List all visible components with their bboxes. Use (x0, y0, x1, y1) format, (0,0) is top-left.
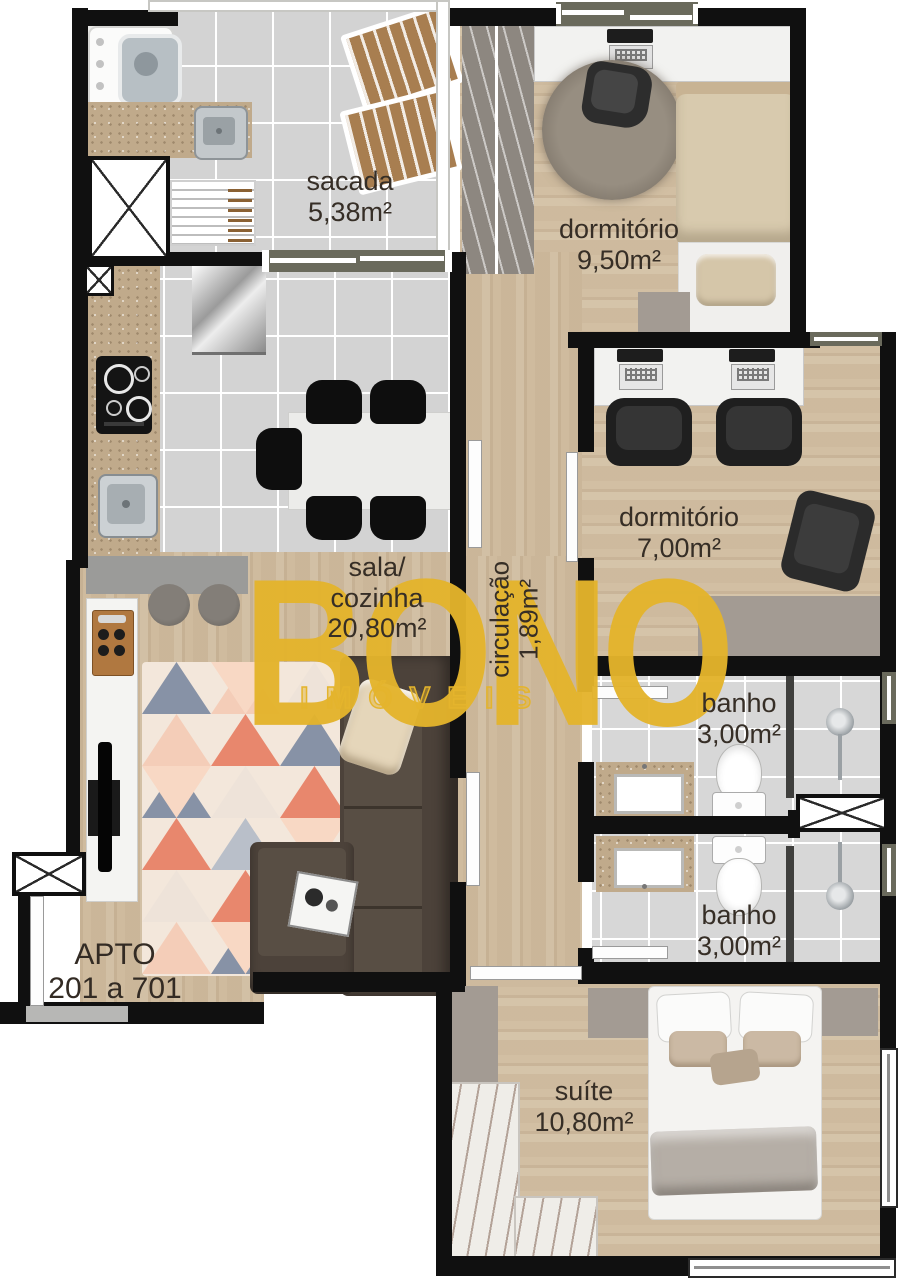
balcony-railing (148, 0, 440, 12)
room-label-sala-cozinha: sala/ cozinha 20,80m² (298, 552, 456, 644)
window (880, 1048, 898, 1208)
laptop-icon (729, 349, 775, 362)
window (882, 672, 896, 724)
double-desk (594, 344, 804, 406)
small-duct-shaft (84, 264, 114, 296)
bar-stool (148, 584, 190, 626)
bedroom1-door (468, 440, 482, 548)
room-label-banho2: banho 3,00m² (686, 900, 792, 961)
dining-chair (256, 428, 302, 490)
room-area: 1,89m² (515, 529, 544, 709)
laptop-icon (617, 349, 663, 362)
shower-arm (838, 734, 842, 780)
apartment-label-line1: APTO (40, 938, 190, 972)
room-name: banho (686, 688, 792, 719)
room-label-sacada: sacada 5,38m² (292, 166, 408, 227)
accent-pillow (709, 1048, 761, 1086)
single-bed (676, 82, 796, 332)
entry-threshold (26, 1006, 128, 1022)
bath2-door (592, 946, 668, 959)
drying-rack (170, 180, 256, 246)
window (810, 332, 882, 346)
blanket (650, 1126, 818, 1196)
washing-machine (88, 26, 174, 110)
dining-chair (370, 496, 426, 540)
suite-cabinet (448, 986, 498, 1084)
bath-duct-shaft (796, 794, 888, 832)
headboard-ledge (588, 988, 650, 1038)
floor-plan: BONO IMÓVEIS sacada 5,38m² dormitório 9,… (0, 0, 899, 1280)
room-area: 7,00m² (598, 533, 760, 564)
bar-stool (198, 584, 240, 626)
suite-closet-hangers (450, 1082, 520, 1272)
headboard-ledge (818, 988, 878, 1036)
duct-shaft (88, 156, 170, 260)
desk-chair (580, 59, 655, 131)
shower-head (826, 708, 854, 736)
fridge (192, 266, 266, 355)
cooktop (96, 356, 152, 434)
apartment-label: APTO 201 a 701 (40, 938, 190, 1006)
pillow (696, 254, 776, 306)
sliding-door (264, 250, 450, 272)
room-name: circulação (486, 529, 515, 709)
laundry-tank-sink (194, 106, 248, 160)
window-shaft (12, 852, 86, 896)
window (556, 2, 698, 26)
room-area: 9,50m² (538, 245, 700, 276)
room-name: banho (686, 900, 792, 931)
office-chair (716, 398, 802, 466)
sound-equipment (92, 610, 134, 676)
room-name: dormitório (598, 502, 760, 533)
window (688, 1258, 896, 1278)
laptop-icon (607, 29, 653, 43)
coffee-table (288, 871, 359, 937)
room-name: suíte (516, 1076, 652, 1107)
window (882, 844, 896, 896)
room-label-dormitorio1: dormitório 9,50m² (538, 214, 700, 275)
apartment-label-line2: 201 a 701 (40, 972, 190, 1006)
room-area: 5,38m² (292, 197, 408, 228)
double-bed (648, 986, 822, 1220)
office-chair (606, 398, 692, 466)
bath2-vanity (596, 836, 694, 892)
dresser (638, 292, 690, 332)
room-name: cozinha (298, 583, 456, 614)
tv (98, 742, 112, 872)
dining-chair (306, 496, 362, 540)
dining-chair (370, 380, 426, 424)
kitchen-sink (98, 474, 158, 538)
suite-door (470, 966, 582, 980)
wardrobe-hangers (462, 26, 534, 274)
shower-head (826, 882, 854, 910)
room-name: dormitório (538, 214, 700, 245)
room-area: 3,00m² (686, 719, 792, 750)
room-label-circulacao: circulação 1,89m² (486, 529, 545, 709)
living-corridor-door (466, 772, 480, 886)
room-label-banho1: banho 3,00m² (686, 688, 792, 749)
room-name: sala/ (298, 552, 456, 583)
room-area: 3,00m² (686, 931, 792, 962)
balcony-railing (436, 0, 450, 254)
room-area: 10,80m² (516, 1107, 652, 1138)
room-label-dormitorio2: dormitório 7,00m² (598, 502, 760, 563)
room-label-suite: suíte 10,80m² (516, 1076, 652, 1137)
room-name: sacada (292, 166, 408, 197)
dining-chair (306, 380, 362, 424)
room-area: 20,80m² (298, 613, 456, 644)
bath1-vanity (596, 762, 694, 818)
